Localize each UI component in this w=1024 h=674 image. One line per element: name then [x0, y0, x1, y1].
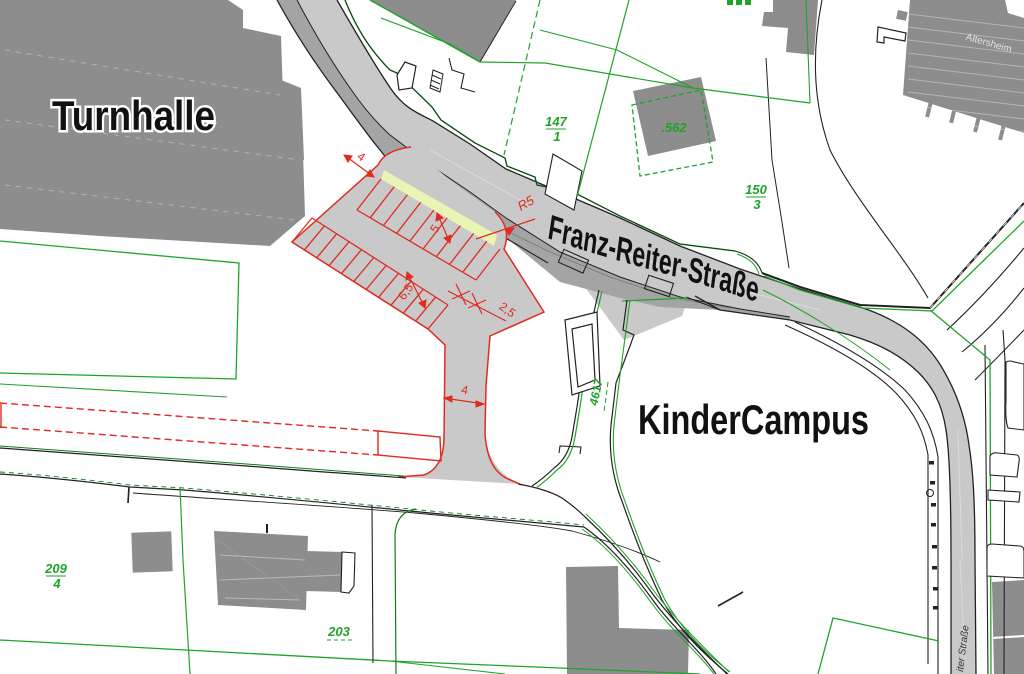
svg-text:1: 1 — [553, 129, 560, 144]
svg-text:KinderCampus: KinderCampus — [638, 396, 869, 443]
svg-text:147: 147 — [545, 114, 567, 129]
svg-text:150: 150 — [745, 182, 767, 197]
svg-text:.562: .562 — [661, 120, 687, 135]
svg-text:209: 209 — [44, 561, 67, 576]
svg-text:4: 4 — [52, 576, 61, 591]
svg-text:203: 203 — [327, 624, 350, 639]
svg-text:Turnhalle: Turnhalle — [52, 92, 215, 139]
svg-text:3: 3 — [753, 197, 761, 212]
